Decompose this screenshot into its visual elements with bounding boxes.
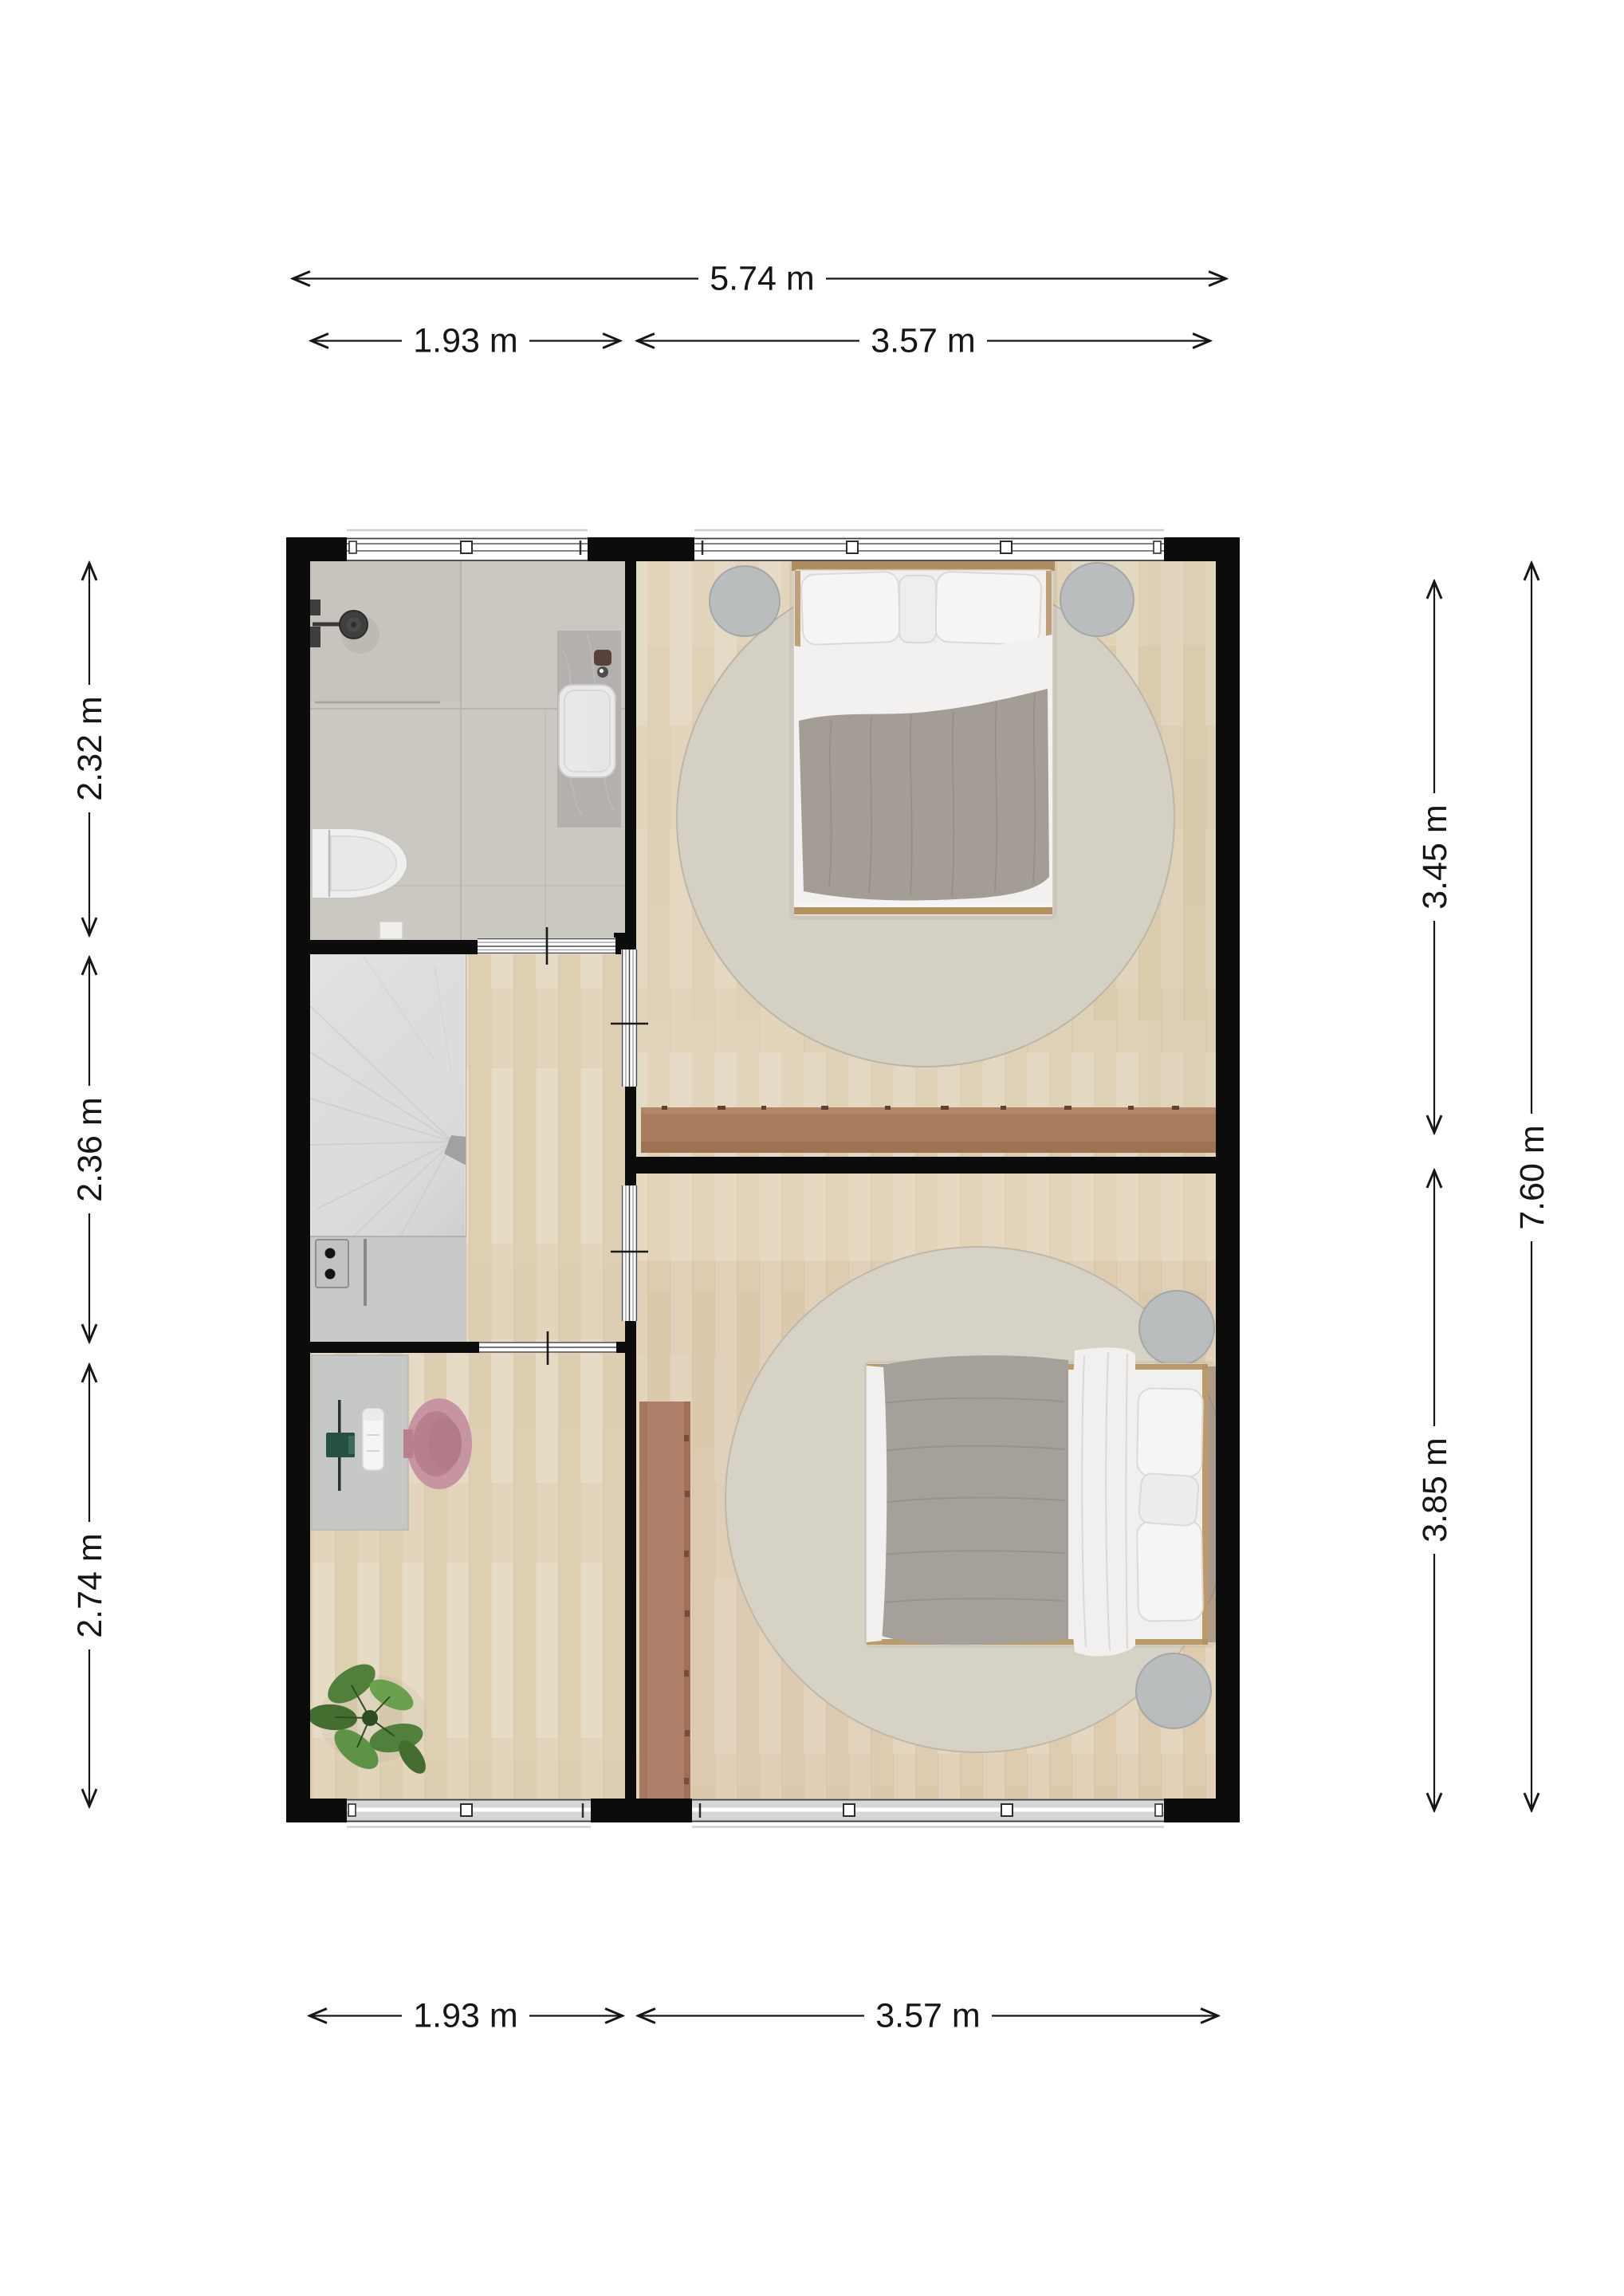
svg-text:3.57 m: 3.57 m bbox=[875, 1997, 980, 2035]
svg-text:2.36 m: 2.36 m bbox=[71, 1097, 109, 1201]
svg-text:2.32 m: 2.32 m bbox=[71, 696, 109, 800]
svg-text:5.74 m: 5.74 m bbox=[710, 260, 814, 298]
svg-text:1.93 m: 1.93 m bbox=[413, 322, 517, 360]
svg-text:2.74 m: 2.74 m bbox=[71, 1533, 109, 1637]
svg-text:1.93 m: 1.93 m bbox=[413, 1997, 517, 2035]
svg-text:3.57 m: 3.57 m bbox=[871, 322, 975, 360]
svg-text:3.85 m: 3.85 m bbox=[1416, 1437, 1454, 1542]
svg-text:3.45 m: 3.45 m bbox=[1416, 804, 1454, 909]
svg-text:7.60 m: 7.60 m bbox=[1513, 1125, 1551, 1229]
